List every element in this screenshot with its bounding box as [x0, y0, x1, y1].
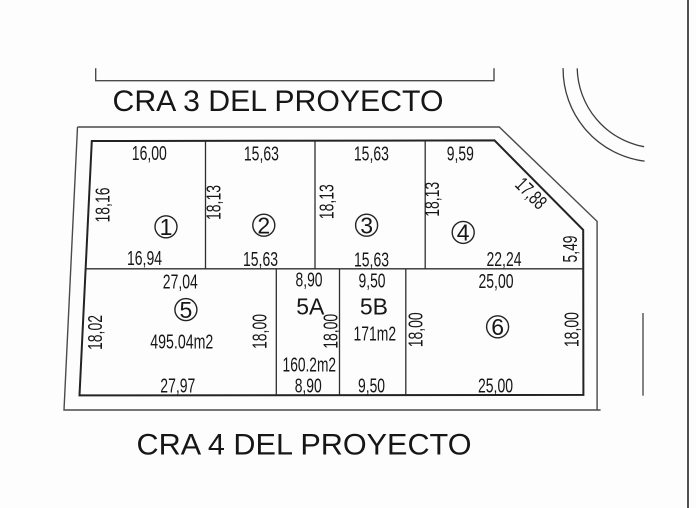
svg-text:495.04m2: 495.04m2	[150, 332, 213, 354]
svg-text:18,00: 18,00	[321, 314, 343, 349]
svg-text:3: 3	[360, 212, 373, 238]
svg-text:22,24: 22,24	[487, 249, 522, 271]
svg-text:CRA 3 DEL PROYECTO: CRA 3 DEL PROYECTO	[113, 85, 444, 118]
svg-text:16,94: 16,94	[127, 248, 162, 270]
svg-text:5,49: 5,49	[560, 236, 582, 263]
svg-text:6: 6	[491, 314, 504, 340]
svg-text:25,00: 25,00	[478, 375, 513, 397]
svg-text:18,00: 18,00	[562, 312, 584, 347]
svg-text:15,63: 15,63	[354, 143, 389, 165]
svg-text:8,90: 8,90	[295, 376, 322, 398]
svg-text:18,02: 18,02	[85, 315, 107, 350]
svg-text:18,16: 18,16	[93, 188, 115, 223]
svg-text:CRA 4 DEL PROYECTO: CRA 4 DEL PROYECTO	[137, 429, 472, 462]
svg-text:27,04: 27,04	[163, 271, 198, 293]
svg-text:18,00: 18,00	[406, 312, 428, 347]
svg-text:27,97: 27,97	[160, 376, 195, 398]
svg-text:15,63: 15,63	[354, 249, 389, 271]
svg-text:8,90: 8,90	[296, 270, 323, 292]
svg-text:5B: 5B	[360, 293, 388, 319]
svg-text:160.2m2: 160.2m2	[283, 355, 337, 377]
svg-text:18,13: 18,13	[317, 184, 339, 219]
svg-text:1: 1	[160, 214, 173, 240]
svg-text:4: 4	[457, 220, 470, 246]
svg-text:25,00: 25,00	[479, 271, 514, 293]
svg-text:18,00: 18,00	[250, 314, 272, 349]
svg-text:18,13: 18,13	[422, 182, 444, 217]
svg-text:9,50: 9,50	[358, 376, 385, 398]
svg-text:5: 5	[180, 297, 193, 323]
svg-text:15,63: 15,63	[244, 143, 279, 165]
svg-text:2: 2	[257, 212, 270, 238]
svg-text:9,50: 9,50	[359, 271, 386, 293]
svg-text:18,13: 18,13	[204, 185, 226, 220]
svg-text:9,59: 9,59	[447, 144, 474, 166]
svg-text:16,00: 16,00	[132, 143, 167, 165]
svg-text:15,63: 15,63	[243, 249, 278, 271]
svg-text:171m2: 171m2	[354, 324, 397, 346]
